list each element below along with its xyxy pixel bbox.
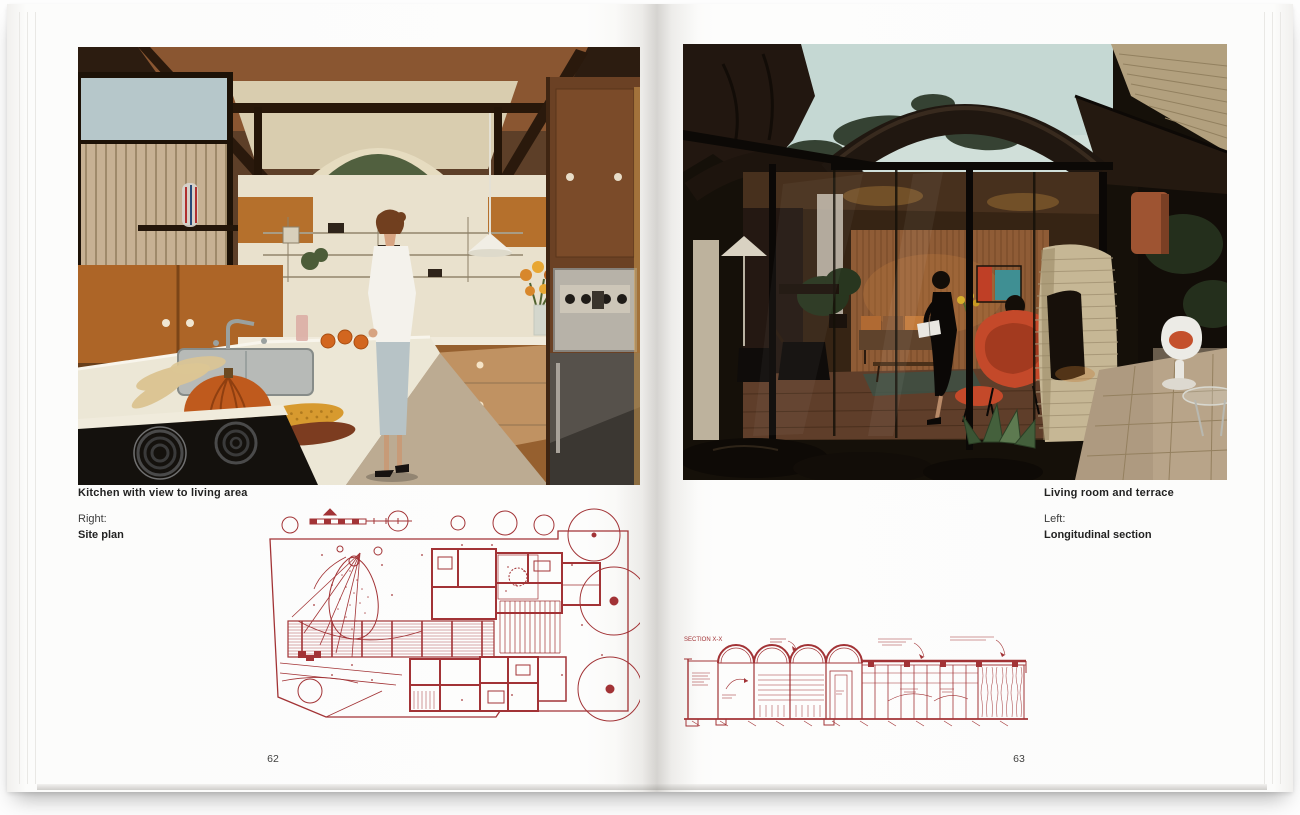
longitudinal-section-drawing: SECTION X-X — [678, 631, 1034, 737]
page-edges-left — [19, 12, 43, 784]
right-photo-caption: Living room and terrace — [1044, 487, 1174, 499]
left-reference-caption-block: Right: Site plan — [78, 513, 124, 541]
refrigerator — [550, 353, 640, 485]
left-photo-caption: Kitchen with view to living area — [78, 487, 248, 499]
site-plan-drawing — [262, 505, 640, 733]
left-page-number: 62 — [256, 753, 290, 765]
fence-slats — [86, 144, 226, 268]
living-room-photo — [683, 44, 1227, 480]
right-reference-label: Left: — [1044, 513, 1152, 525]
book-spread: Kitchen with view to living area Right: … — [0, 0, 1300, 815]
section-annotation: SECTION X-X — [684, 637, 722, 643]
page-edges-right — [1257, 12, 1281, 784]
right-page-number: 63 — [1002, 753, 1036, 765]
left-reference-title: Site plan — [78, 529, 124, 541]
right-reference-title: Longitudinal section — [1044, 529, 1152, 541]
wall-oven — [554, 269, 636, 351]
left-reference-label: Right: — [78, 513, 124, 525]
kitchen-photo — [78, 47, 640, 485]
right-reference-caption-block: Left: Longitudinal section — [1044, 513, 1152, 541]
